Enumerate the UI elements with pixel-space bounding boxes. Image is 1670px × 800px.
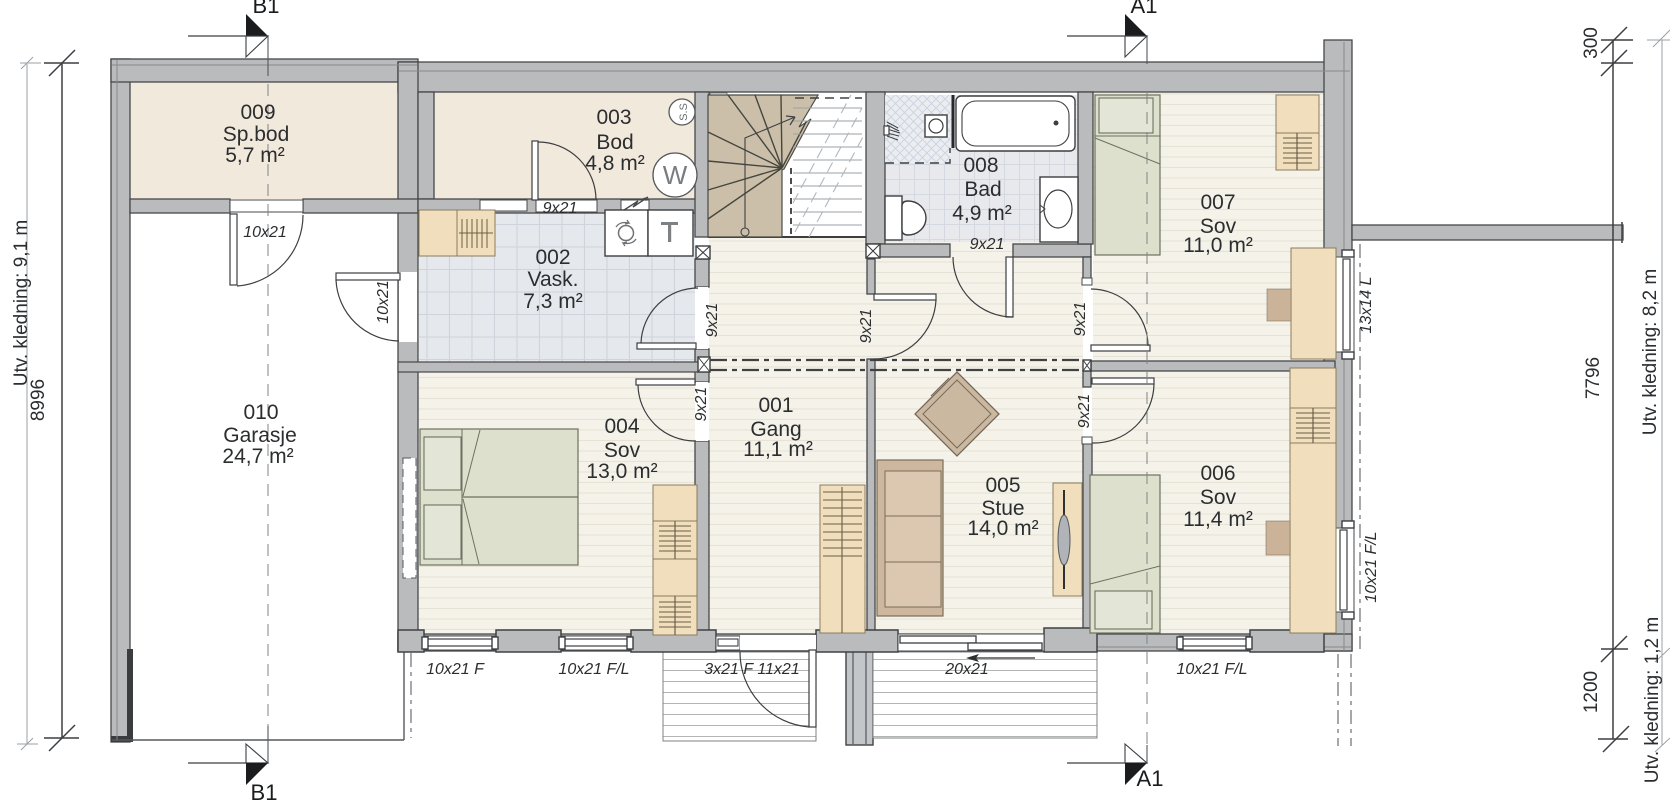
svg-text:1200: 1200 (1581, 671, 1602, 713)
svg-text:010: 010 (243, 401, 278, 424)
svg-text:Sp.bod: Sp.bod (223, 123, 290, 146)
svg-text:14,0 m²: 14,0 m² (967, 517, 1038, 540)
svg-text:Bad: Bad (964, 178, 1001, 201)
svg-text:24,7 m²: 24,7 m² (222, 445, 293, 468)
svg-text:10x21: 10x21 (375, 280, 392, 324)
svg-text:9x21: 9x21 (693, 387, 710, 422)
svg-text:10x21 F/L: 10x21 F/L (1176, 661, 1247, 678)
svg-text:007: 007 (1200, 191, 1235, 214)
svg-text:A1: A1 (1131, 0, 1158, 18)
svg-text:Garasje: Garasje (223, 424, 297, 447)
svg-text:Utv. kledning: 8,2 m: Utv. kledning: 8,2 m (1640, 269, 1661, 436)
svg-text:9x21: 9x21 (858, 309, 875, 344)
svg-text:Bod: Bod (596, 131, 633, 154)
svg-text:10x21: 10x21 (243, 224, 287, 241)
svg-text:7796: 7796 (1583, 357, 1604, 399)
svg-text:8996: 8996 (28, 379, 49, 421)
svg-text:Sov: Sov (604, 439, 641, 462)
svg-text:003: 003 (596, 106, 631, 129)
svg-text:B1: B1 (251, 780, 278, 800)
svg-text:9x21: 9x21 (1072, 302, 1089, 337)
svg-text:006: 006 (1200, 462, 1235, 485)
svg-text:004: 004 (604, 415, 639, 438)
svg-text:Utv. kledning: 1,2 m: Utv. kledning: 1,2 m (1642, 617, 1663, 784)
svg-text:Utv. kledning: 9,1 m: Utv. kledning: 9,1 m (11, 220, 32, 387)
svg-text:11,0 m²: 11,0 m² (1183, 234, 1253, 257)
svg-text:7,3 m²: 7,3 m² (523, 290, 583, 313)
svg-text:001: 001 (758, 394, 793, 417)
svg-text:5,7 m²: 5,7 m² (225, 144, 285, 167)
svg-text:4,9 m²: 4,9 m² (952, 202, 1012, 225)
svg-text:008: 008 (963, 154, 998, 177)
svg-text:Vask.: Vask. (528, 268, 579, 291)
svg-text:4,8 m²: 4,8 m² (585, 152, 645, 175)
svg-text:10x21 F: 10x21 F (426, 661, 485, 678)
svg-text:Sov: Sov (1200, 486, 1237, 509)
svg-text:11,1 m²: 11,1 m² (743, 438, 813, 461)
svg-text:002: 002 (535, 246, 570, 269)
svg-text:20x21: 20x21 (944, 661, 989, 678)
svg-text:9x21: 9x21 (543, 200, 578, 217)
svg-text:13x14 L: 13x14 L (1358, 277, 1375, 334)
svg-text:A1: A1 (1137, 766, 1164, 791)
svg-text:005: 005 (985, 474, 1020, 497)
svg-text:W: W (663, 160, 688, 190)
svg-text:13,0 m²: 13,0 m² (586, 460, 657, 483)
svg-text:9x21: 9x21 (704, 303, 721, 338)
svg-text:009: 009 (240, 101, 275, 124)
svg-text:9x21: 9x21 (970, 236, 1005, 253)
svg-text:B1: B1 (253, 0, 280, 18)
svg-text:300: 300 (1581, 27, 1602, 59)
svg-text:3x21 F 11x21: 3x21 F 11x21 (704, 661, 799, 678)
svg-text:S.S: S.S (678, 103, 690, 121)
svg-text:11,4 m²: 11,4 m² (1183, 508, 1253, 531)
svg-text:9x21: 9x21 (1076, 394, 1093, 429)
svg-text:10x21 F/L: 10x21 F/L (558, 661, 629, 678)
svg-text:10x21 F/L: 10x21 F/L (1363, 531, 1380, 602)
